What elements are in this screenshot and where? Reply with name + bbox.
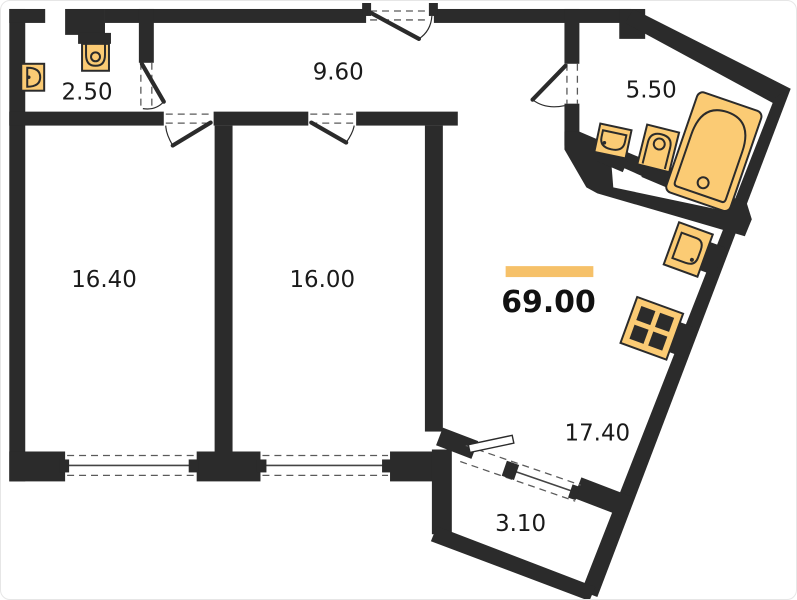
total-area: 69.00 <box>501 266 596 320</box>
bathroom-door <box>533 64 578 107</box>
room-area-label-bedroom-2: 16.00 <box>289 267 355 293</box>
room-area-label-wc: 2.50 <box>62 80 113 106</box>
wc-toilet-icon <box>82 44 109 71</box>
balcony-door-window <box>460 435 580 501</box>
wc-sink-icon <box>21 64 44 91</box>
bedroom-1-window <box>59 455 199 475</box>
bedroom-2-door <box>310 114 354 142</box>
bedroom-2-window <box>256 455 392 475</box>
bedroom-1-door <box>166 114 212 145</box>
room-area-label-bedroom-1: 16.40 <box>71 267 137 293</box>
room-area-label-kitchen-living: 17.40 <box>565 421 631 447</box>
entrance-door <box>362 3 438 39</box>
room-area-label-balcony: 3.10 <box>495 511 546 537</box>
floor-plan-drawing: 2.50 9.60 5.50 16.40 16.00 17.40 3.10 69… <box>1 1 796 599</box>
total-area-label: 69.00 <box>501 285 596 320</box>
floor-plan: 2.50 9.60 5.50 16.40 16.00 17.40 3.10 69… <box>0 0 797 600</box>
room-area-label-bathroom: 5.50 <box>626 78 677 104</box>
bathroom-sink-icon <box>594 124 631 159</box>
room-area-label-hallway: 9.60 <box>313 60 364 86</box>
wc-door <box>141 63 164 109</box>
total-area-accent-bar <box>506 266 594 277</box>
